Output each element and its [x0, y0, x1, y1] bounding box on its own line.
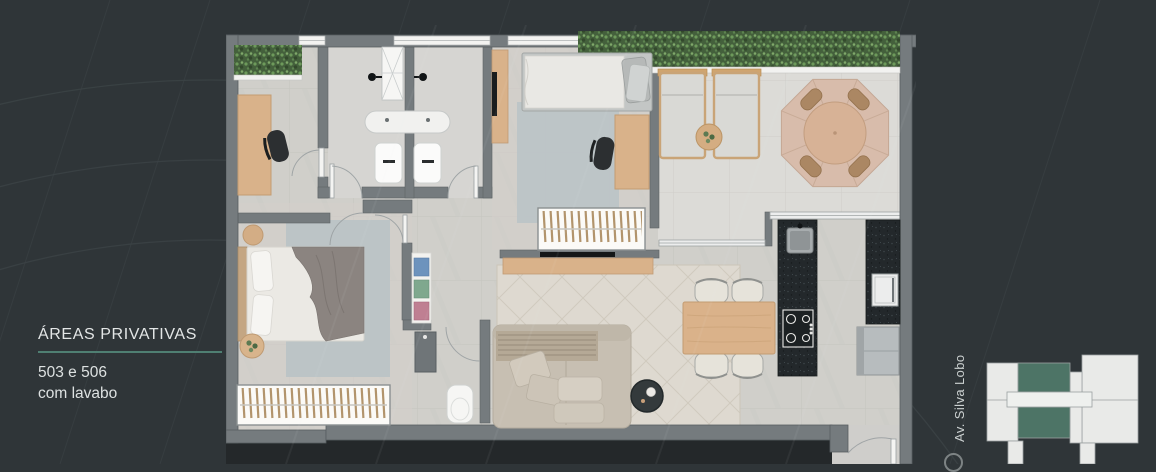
unit-numbers: 503 e 506 [38, 362, 228, 383]
street-label: Av. Silva Lobo [952, 354, 967, 442]
key-plan-core [1007, 392, 1092, 407]
key-plan-unit-top [1018, 363, 1070, 392]
page-title: ÁREAS PRIVATIVAS [38, 326, 228, 344]
key-plan-unit-bottom [1018, 407, 1070, 438]
bedroom2-desk [615, 115, 649, 189]
kitchen-sink [787, 224, 813, 254]
tv [540, 252, 615, 257]
master-wardrobe [237, 385, 390, 425]
sofa [493, 325, 631, 428]
fridge [857, 327, 899, 375]
bedroom2-wardrobe [538, 208, 645, 250]
unit-feature: com lavabo [38, 383, 228, 404]
plan-base-shadow [226, 440, 848, 464]
page: { "page": { "background_color": "#2f3538… [0, 0, 1156, 464]
cooktop [783, 310, 813, 347]
kitchen-counter [778, 220, 817, 376]
compass-icon [944, 453, 963, 472]
double-sink [365, 111, 450, 133]
nightstand-plant [240, 334, 264, 358]
bedroom2-bed [522, 53, 652, 111]
side-counter [866, 220, 900, 324]
info-panel: ÁREAS PRIVATIVAS 503 e 506 com lavabo [38, 326, 228, 404]
side-table-plant [696, 124, 722, 150]
umbrella-table-set [781, 79, 888, 186]
office-planter [234, 45, 302, 75]
title-underline [38, 351, 222, 353]
floor-plan [226, 25, 916, 464]
tv-console [503, 258, 653, 274]
oven [872, 274, 898, 306]
key-plan [980, 350, 1145, 464]
lavabo-toilet [447, 385, 473, 423]
unit-subtitle: 503 e 506 com lavabo [38, 362, 228, 404]
nightstand [243, 225, 263, 245]
coffee-table [631, 380, 663, 412]
key-plan-notch [1070, 372, 1082, 443]
